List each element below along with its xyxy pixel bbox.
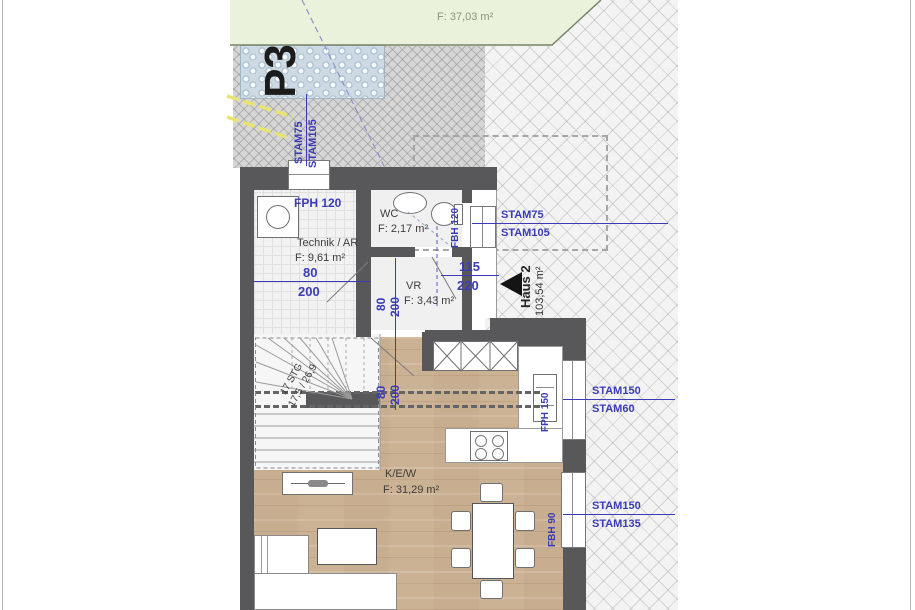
- entry-dim-fraction-line: [441, 275, 499, 276]
- house-label: Haus 2: [518, 256, 533, 308]
- north-window-sill: FPH 120: [294, 197, 341, 209]
- house-area-value: 103,54 m²: [534, 250, 546, 316]
- entry-width: 115: [459, 260, 480, 273]
- entry-sill: FBH 120: [451, 196, 461, 248]
- east-lower-dim-line: [563, 514, 675, 515]
- north-window-dim-line: [306, 94, 307, 166]
- east-lower-stam2: STAM135: [592, 519, 641, 530]
- east-lower-stam1: STAM150: [592, 501, 641, 512]
- kitchen-door-width: 80: [375, 375, 387, 399]
- room-wc-area: F: 2,17 m²: [378, 224, 428, 235]
- entry-stam2: STAM105: [501, 228, 550, 239]
- room-technik-area: F: 9,61 m²: [295, 253, 345, 264]
- cabinet-x-marks: [433, 341, 518, 371]
- garden-boundary-line: [230, 0, 601, 45]
- entry-height: 220: [457, 279, 479, 292]
- room-kew-name: K/E/W: [385, 469, 416, 480]
- room-vr-area: F: 3,43 m²: [404, 296, 454, 307]
- door-swing-technik: [327, 262, 368, 302]
- room-vr-name: VR: [406, 281, 421, 292]
- door-swing-vr: [432, 257, 456, 299]
- east-lower-sill: FBH 90: [548, 489, 558, 547]
- technik-door-width: 80: [303, 266, 317, 279]
- floor-plan-canvas: Gartenfläche Haus 2 F: 37,03 m² P3: [0, 0, 915, 610]
- north-window-stam2: STAM105: [308, 92, 319, 168]
- east-upper-sill: FPH 150: [541, 368, 551, 432]
- kitchen-door-height: 200: [389, 369, 401, 405]
- east-upper-stam2: STAM60: [592, 404, 635, 415]
- utility-yellow-line: [227, 96, 293, 117]
- east-upper-stam1: STAM150: [592, 386, 641, 397]
- vr-door-width: 80: [375, 287, 387, 311]
- room-technik-name: Technik / AR: [297, 238, 358, 249]
- technik-door-height: 200: [298, 285, 320, 298]
- technik-door-dim-line: [253, 281, 370, 282]
- utility-yellow-line: [227, 117, 286, 137]
- entry-dim-line: [472, 223, 668, 224]
- room-wc-name: WC: [380, 209, 398, 220]
- entry-stam1: STAM75: [501, 210, 544, 221]
- east-upper-dim-line: [563, 399, 675, 400]
- plan-linework: [0, 0, 915, 610]
- room-kew-area: F: 31,29 m²: [383, 485, 439, 496]
- north-window-stam1: STAM75: [294, 100, 305, 164]
